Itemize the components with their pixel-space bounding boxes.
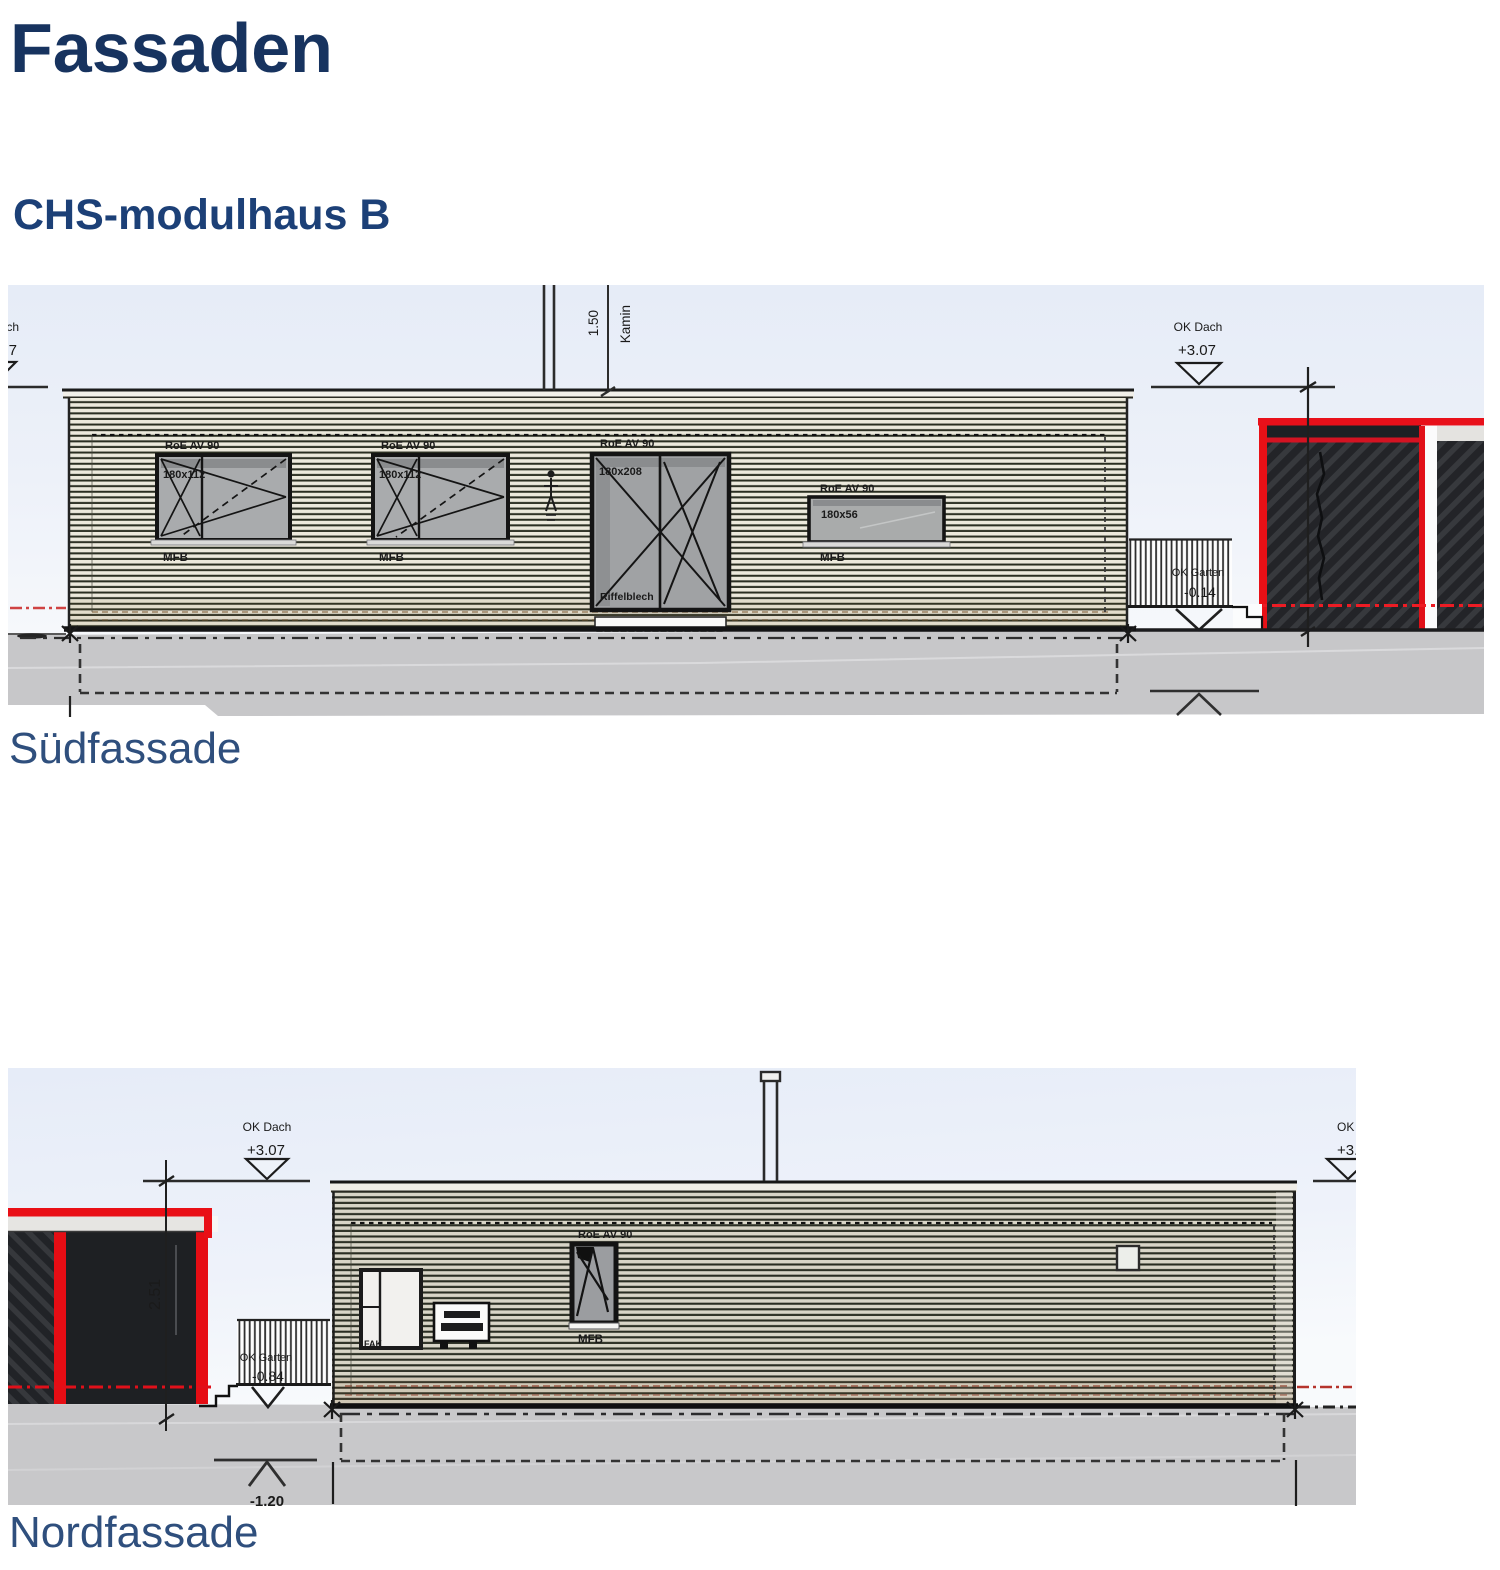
svg-text:Riffelblech: Riffelblech <box>600 591 654 603</box>
svg-text:MFB: MFB <box>820 552 845 564</box>
svg-text:Kamin: Kamin <box>618 305 633 343</box>
svg-text:180x208: 180x208 <box>599 466 642 478</box>
svg-text:RoE AV 90: RoE AV 90 <box>165 440 219 452</box>
svg-text:180x112: 180x112 <box>163 469 205 481</box>
svg-text:OK Garten: OK Garten <box>240 1352 293 1364</box>
svg-text:OK Dach: OK Dach <box>243 1120 292 1134</box>
svg-text:MFB: MFB <box>379 552 404 564</box>
svg-text:180x112: 180x112 <box>379 469 421 481</box>
svg-text:2.51: 2.51 <box>147 1279 164 1310</box>
svg-text:-0.14: -0.14 <box>1184 584 1216 600</box>
svg-text:OK Dach: OK Dach <box>1337 1120 1356 1134</box>
svg-text:RoE AV 90: RoE AV 90 <box>600 438 654 450</box>
svg-text:-1.20: -1.20 <box>250 1493 284 1510</box>
svg-text:OK Dach: OK Dach <box>8 320 19 334</box>
svg-text:RoE AV 90: RoE AV 90 <box>381 440 435 452</box>
svg-text:RoE AV 90: RoE AV 90 <box>820 483 874 495</box>
svg-text:180x56: 180x56 <box>821 509 858 521</box>
svg-text:OK Garten: OK Garten <box>1172 567 1225 579</box>
svg-text:+3.07: +3.07 <box>8 342 17 359</box>
svg-text:MFB: MFB <box>578 1334 603 1346</box>
svg-text:+3.07: +3.07 <box>1178 342 1216 359</box>
svg-text:1.50: 1.50 <box>586 310 601 336</box>
svg-text:-0.84: -0.84 <box>252 1368 284 1384</box>
svg-text:MFB: MFB <box>163 552 188 564</box>
svg-text:+3.07: +3.07 <box>1337 1142 1356 1159</box>
svg-text:OK Dach: OK Dach <box>1174 320 1223 334</box>
svg-text:FAK: FAK <box>364 1339 383 1349</box>
svg-text:RoE AV 90: RoE AV 90 <box>578 1229 632 1241</box>
svg-text:+3.07: +3.07 <box>247 1142 285 1159</box>
